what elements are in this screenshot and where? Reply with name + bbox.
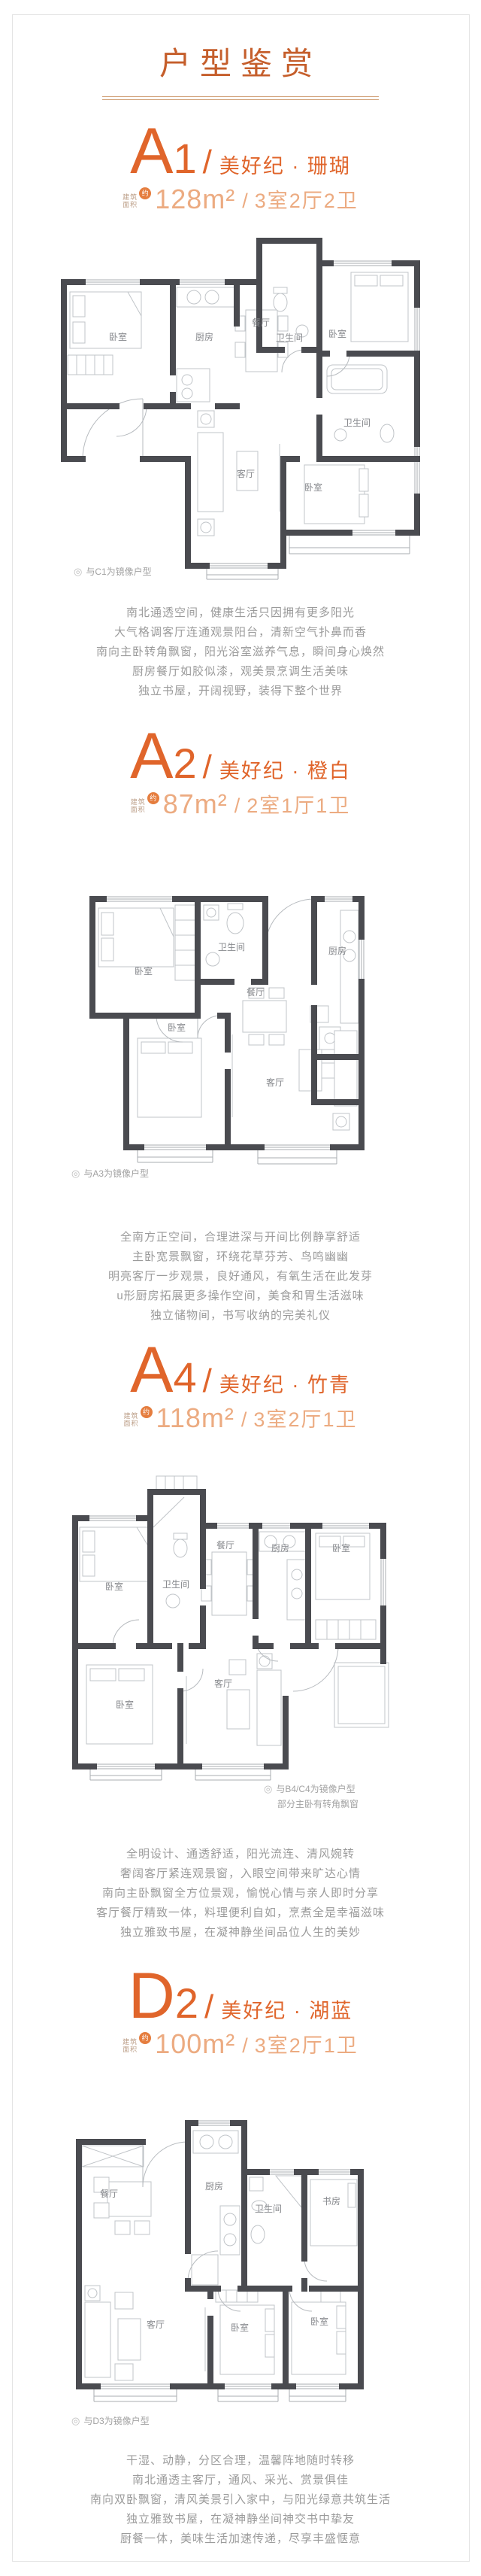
room-label: 卧室 bbox=[310, 2316, 328, 2327]
unit-name: 美好纪 · 竹青 bbox=[219, 1368, 351, 1398]
unit-digit: 2 bbox=[175, 1979, 198, 2028]
room-count: 3室2厅2卫 bbox=[255, 190, 358, 213]
description-line: 大气格调客厅连通观景阳台，清新空气扑鼻而香 bbox=[0, 623, 481, 642]
slash-separator: / bbox=[204, 1988, 213, 2026]
mirror-note-a1: ◎与C1为镜像户型 bbox=[74, 564, 152, 579]
unit-digit: 2 bbox=[173, 739, 196, 788]
description-line: 独立书屋，开阔视野，装得下整个世界 bbox=[0, 682, 481, 701]
description-line: 全南方正空间，合理进深与开间比例静享舒适 bbox=[0, 1228, 481, 1247]
approx-badge: 约 bbox=[147, 792, 159, 804]
description-line: 独立雅致书屋，在凝神静坐间品位人生的美妙 bbox=[0, 1923, 481, 1943]
slash-separator: / bbox=[203, 1362, 212, 1400]
slash-separator: / bbox=[203, 749, 212, 786]
room-label: 餐厅 bbox=[100, 2188, 118, 2199]
approx-badge: 约 bbox=[139, 2032, 151, 2044]
area-prefix: 建筑面积 bbox=[131, 798, 146, 813]
unit-a2-area: 建筑面积 约 87m² / 2室1厅1卫 bbox=[0, 791, 481, 818]
unit-digit: 4 bbox=[173, 1353, 196, 1402]
room-label: 卫生间 bbox=[343, 418, 371, 428]
room-label: 客厅 bbox=[266, 1077, 284, 1088]
mirror-note-text: 与A3为镜像户型 bbox=[83, 1168, 149, 1179]
description-line: 奢阔客厅紧连观景窗，入眼空间带来旷达心情 bbox=[0, 1864, 481, 1884]
unit-d2-description: 干湿、动静，分区合理，温馨阵地随时转移 南北通透主客厅，通风、采光、赏景俱佳 南… bbox=[0, 2451, 481, 2549]
unit-a1-description: 南北通透空间，健康生活只因拥有更多阳光 大气格调客厅连通观景阳台，清新空气扑鼻而… bbox=[0, 603, 481, 701]
approx-badge: 约 bbox=[141, 1406, 153, 1418]
balconies bbox=[90, 1769, 271, 1780]
description-line: 厨房餐厅如胶似漆，观美景烹调生活美味 bbox=[0, 662, 481, 682]
unit-name: 美好纪 · 橙白 bbox=[219, 755, 351, 784]
approx-badge: 约 bbox=[139, 187, 151, 199]
mirror-note-d2: ◎与D3为镜像户型 bbox=[71, 2413, 150, 2429]
floor-plan-a4-drawing: 卧室 卫生间 餐厅 厨房 卧室 卧室 客厅 bbox=[68, 1473, 391, 1783]
room-label: 卫生间 bbox=[255, 2204, 282, 2214]
slash-separator: / bbox=[203, 144, 212, 181]
mirror-note-text: 与B4/C4为镜像户型 bbox=[276, 1784, 355, 1794]
description-line: 全明设计、通透舒适，阳光流连、清风婉转 bbox=[0, 1845, 481, 1864]
floor-plan-d2: 餐厅 厨房 卫生间 书房 客厅 卧室 卧室 bbox=[71, 2101, 368, 2409]
room-label: 卫生间 bbox=[276, 333, 303, 343]
room-label: 餐厅 bbox=[216, 1539, 234, 1551]
mirror-note-a2: ◎与A3为镜像户型 bbox=[71, 1166, 149, 1181]
area-prefix: 建筑面积 bbox=[124, 1412, 139, 1427]
description-line: 厨餐一体，美味生活加速传递，尽享丰盛惬意 bbox=[0, 2529, 481, 2549]
floor-plan-a1: 卧室 厨房 餐厅 卫生间 卧室 卫生间 客厅 卧室 bbox=[56, 226, 425, 589]
unit-a4-header: A4 / 美好纪 · 竹青 建筑面积 约 118m² / 3室2厅1卫 bbox=[0, 1341, 481, 1432]
room-label: 卧室 bbox=[109, 331, 127, 342]
balconies bbox=[138, 1150, 337, 1164]
description-line: u形厨房拓展更多操作空间，美食和胃生活滋味 bbox=[0, 1286, 481, 1306]
room-label: 厨房 bbox=[205, 2180, 223, 2192]
description-line: 主卧宽景飘窗，环绕花草芬芳、鸟鸣幽幽 bbox=[0, 1247, 481, 1267]
room-count: 2室1厅1卫 bbox=[247, 794, 350, 818]
room-count: 3室2厅1卫 bbox=[253, 1408, 357, 1432]
description-line: 独立储物间，书写收纳的完美礼仪 bbox=[0, 1306, 481, 1326]
floor-plan-page: 户型鉴赏 A1 / 美好纪 · 珊瑚 建筑面积 约 128m² / 3室2厅2卫 bbox=[0, 0, 481, 2576]
description-line: 南向主卧转角飘窗，阳光浴室滋养气息，瞬间身心焕然 bbox=[0, 642, 481, 662]
mirror-icon: ◎ bbox=[71, 2415, 80, 2426]
room-count: 3室2厅1卫 bbox=[255, 2034, 358, 2058]
area-value: 100m² bbox=[155, 2031, 235, 2058]
floor-plan-d2-drawing: 餐厅 厨房 卫生间 书房 客厅 卧室 卧室 bbox=[71, 2101, 368, 2405]
unit-letter: A bbox=[130, 1341, 173, 1399]
area-separator: / bbox=[242, 2034, 248, 2058]
room-label: 厨房 bbox=[195, 331, 213, 342]
unit-d2-header: D2 / 美好纪 · 湖蓝 建筑面积 约 100m² / 3室2厅1卫 bbox=[0, 1967, 481, 2058]
floor-plan-a2-drawing: 卧室 卫生间 厨房 卧室 餐厅 客厅 bbox=[85, 869, 371, 1166]
unit-a2-description: 全南方正空间，合理进深与开间比例静享舒适 主卧宽景飘窗，环绕花草芬芳、鸟鸣幽幽 … bbox=[0, 1228, 481, 1326]
area-separator: / bbox=[242, 189, 248, 213]
unit-a4-description: 全明设计、通透舒适，阳光流连、清风婉转 奢阔客厅紧连观景窗，入眼空间带来旷达心情… bbox=[0, 1845, 481, 1943]
room-label: 卧室 bbox=[105, 1581, 123, 1592]
floor-plan-a4: 卧室 卫生间 餐厅 厨房 卧室 卧室 客厅 bbox=[68, 1473, 391, 1787]
mirror-note-text-2: 部分主卧有转角飘窗 bbox=[277, 1797, 358, 1812]
area-value: 128m² bbox=[155, 186, 235, 213]
room-label: 卧室 bbox=[231, 2322, 249, 2333]
mirror-note-text: 与C1为镜像户型 bbox=[86, 567, 151, 577]
unit-a1-area: 建筑面积 约 128m² / 3室2厅2卫 bbox=[0, 186, 481, 213]
room-label: 卫生间 bbox=[162, 1579, 189, 1590]
room-label: 卧室 bbox=[328, 328, 346, 339]
room-label: 卧室 bbox=[168, 1022, 186, 1033]
room-label: 卧室 bbox=[135, 965, 153, 977]
description-line: 南北通透主客厅，通风、采光、赏景俱佳 bbox=[0, 2471, 481, 2490]
mirror-icon: ◎ bbox=[71, 1168, 80, 1179]
room-label: 厨房 bbox=[328, 945, 346, 956]
floor-plan-a2: 卧室 卫生间 厨房 卧室 餐厅 客厅 bbox=[85, 869, 371, 1170]
area-prefix: 建筑面积 bbox=[123, 2038, 138, 2053]
area-value: 87m² bbox=[163, 791, 228, 818]
unit-digit: 1 bbox=[173, 134, 196, 183]
room-label: 餐厅 bbox=[252, 317, 270, 328]
unit-a2-header: A2 / 美好纪 · 橙白 建筑面积 约 87m² / 2室1厅1卫 bbox=[0, 727, 481, 818]
description-line: 明亮客厅一步观景，良好通风，有氧生活在此发芽 bbox=[0, 1267, 481, 1286]
room-label: 卧室 bbox=[116, 1699, 134, 1710]
unit-d2-code: D2 / 美好纪 · 湖蓝 bbox=[0, 1967, 481, 2028]
room-label: 客厅 bbox=[214, 1678, 232, 1689]
balconies bbox=[207, 533, 410, 579]
unit-letter: D bbox=[129, 1967, 175, 2025]
area-separator: / bbox=[234, 794, 240, 818]
balconies bbox=[94, 2389, 346, 2401]
description-line: 南向双卧飘窗，清风美景引入家中，与阳光绿意共筑生活 bbox=[0, 2490, 481, 2510]
page-title: 户型鉴赏 bbox=[0, 45, 481, 83]
area-separator: / bbox=[241, 1408, 247, 1432]
mirror-icon: ◎ bbox=[264, 1783, 272, 1794]
unit-letter: A bbox=[130, 122, 173, 181]
area-value: 118m² bbox=[156, 1405, 234, 1432]
room-label: 卧室 bbox=[332, 1542, 350, 1554]
room-label: 卧室 bbox=[304, 481, 322, 493]
room-label: 客厅 bbox=[237, 468, 255, 479]
room-label: 餐厅 bbox=[247, 986, 265, 998]
mirror-icon: ◎ bbox=[74, 566, 82, 577]
room-label: 书房 bbox=[322, 2195, 340, 2207]
description-line: 干湿、动静，分区合理，温馨阵地随时转移 bbox=[0, 2451, 481, 2471]
description-line: 南向主卧飘窗全方位景观，愉悦心情与亲人即时分享 bbox=[0, 1884, 481, 1903]
room-label: 厨房 bbox=[271, 1542, 289, 1554]
description-line: 客厅餐厅精致一体，料理便利自如，烹煮全是幸福滋味 bbox=[0, 1903, 481, 1923]
unit-a4-area: 建筑面积 约 118m² / 3室2厅1卫 bbox=[0, 1405, 481, 1432]
unit-a4-code: A4 / 美好纪 · 竹青 bbox=[0, 1341, 481, 1402]
unit-name: 美好纪 · 珊瑚 bbox=[219, 150, 351, 179]
description-line: 独立雅致书屋，在凝神静坐间神交书中挚友 bbox=[0, 2510, 481, 2529]
mirror-note-text: 与D3为镜像户型 bbox=[83, 2416, 149, 2426]
unit-a1-code: A1 / 美好纪 · 珊瑚 bbox=[0, 122, 481, 183]
unit-letter: A bbox=[130, 727, 173, 785]
unit-a1-header: A1 / 美好纪 · 珊瑚 建筑面积 约 128m² / 3室2厅2卫 bbox=[0, 122, 481, 213]
room-label: 卫生间 bbox=[218, 942, 245, 952]
unit-name: 美好纪 · 湖蓝 bbox=[221, 1994, 352, 2024]
unit-a2-code: A2 / 美好纪 · 橙白 bbox=[0, 727, 481, 788]
room-label: 客厅 bbox=[147, 2319, 165, 2330]
unit-d2-area: 建筑面积 约 100m² / 3室2厅1卫 bbox=[0, 2031, 481, 2058]
mirror-note-a4: ◎与B4/C4为镜像户型 部分主卧有转角飘窗 bbox=[264, 1782, 358, 1812]
area-prefix: 建筑面积 bbox=[123, 193, 138, 208]
floor-plan-a1-drawing: 卧室 厨房 餐厅 卫生间 卧室 卫生间 客厅 卧室 bbox=[56, 226, 425, 585]
furniture bbox=[82, 2131, 357, 2380]
title-divider bbox=[102, 96, 379, 100]
description-line: 南北通透空间，健康生活只因拥有更多阳光 bbox=[0, 603, 481, 623]
